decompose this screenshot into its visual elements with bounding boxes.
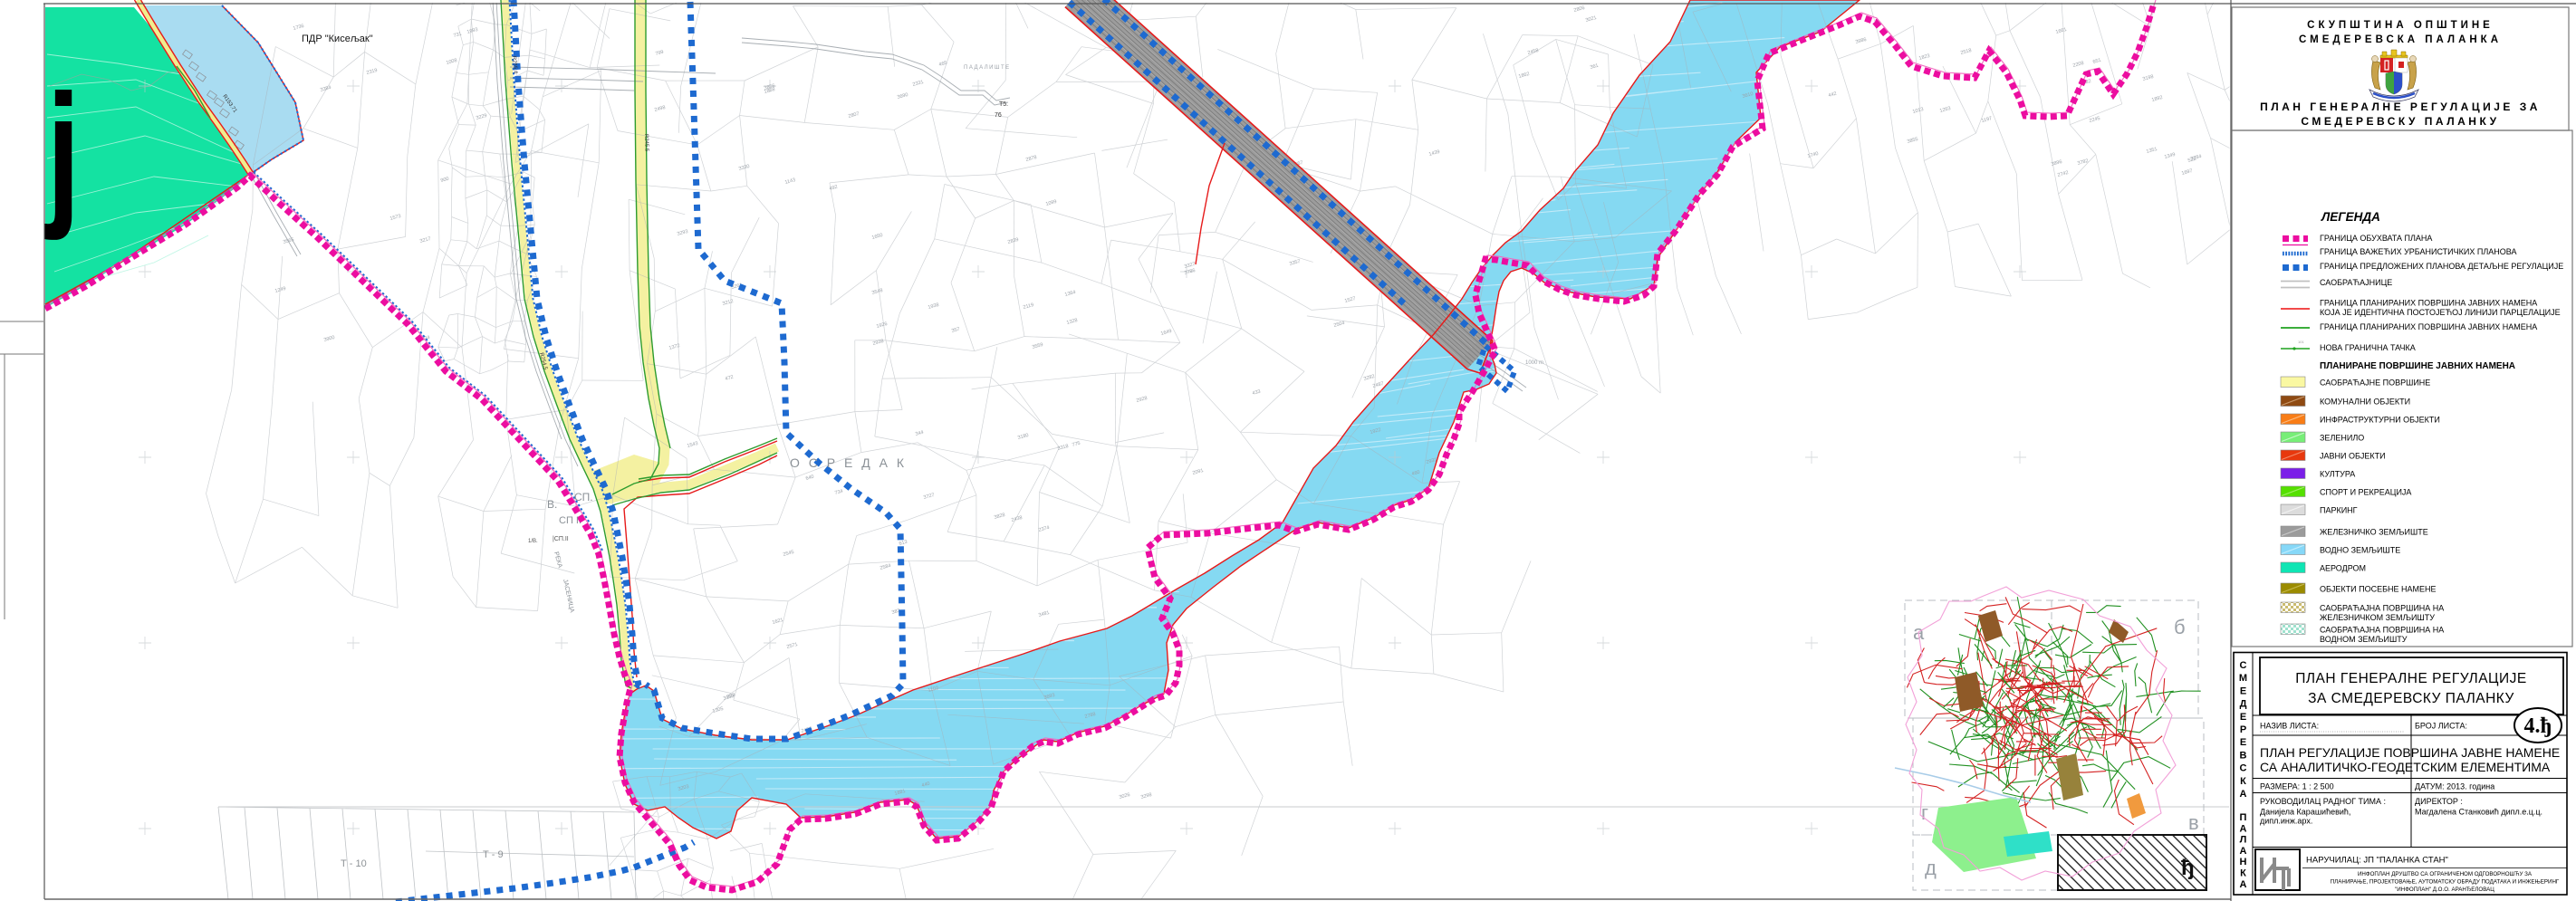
svg-text:ПЛАН ГЕНЕРАЛНЕ РЕГУЛАЦИЈЕ: ПЛАН ГЕНЕРАЛНЕ РЕГУЛАЦИЈЕ	[2295, 671, 2527, 686]
svg-text:САОБРАЋАЈНЕ ПОВРШИНЕ: САОБРАЋАЈНЕ ПОВРШИНЕ	[2320, 379, 2430, 388]
svg-text:ГРАНИЦА ПРЕДЛОЖЕНИХ ПЛАНОВА ДЕ: ГРАНИЦА ПРЕДЛОЖЕНИХ ПЛАНОВА ДЕТАЉНЕ РЕГУ…	[2320, 262, 2563, 271]
svg-text:БРОЈ ЛИСТА:: БРОЈ ЛИСТА:	[2415, 722, 2467, 731]
svg-text:РАЗМЕРА: 1 : 2 500: РАЗМЕРА: 1 : 2 500	[2260, 782, 2334, 791]
svg-text:Е: Е	[2240, 712, 2246, 723]
svg-text:КОЈА ЈЕ ИДЕНТИЧНА ПОСТОЈЕЋОЈ Л: КОЈА ЈЕ ИДЕНТИЧНА ПОСТОЈЕЋОЈ ЛИНИЈИ ПАРЦ…	[2320, 308, 2561, 317]
svg-text:АЕРОДРОМ: АЕРОДРОМ	[2320, 564, 2366, 573]
svg-text:РУКОВОДИЛАЦ РАДНОГ ТИМА :: РУКОВОДИЛАЦ РАДНОГ ТИМА :	[2260, 797, 2386, 806]
svg-text:СМЕДЕРЕВСКА ПАЛАНКА: СМЕДЕРЕВСКА ПАЛАНКА	[2299, 34, 2502, 45]
svg-text:Д: Д	[2240, 699, 2247, 710]
svg-text:ДАТУМ: 2013. година: ДАТУМ: 2013. година	[2415, 782, 2494, 791]
svg-text:ђ: ђ	[2181, 856, 2195, 880]
svg-text:ЖЕЛЕЗНИЧКОМ ЗЕМЉИШТУ: ЖЕЛЕЗНИЧКОМ ЗЕМЉИШТУ	[2320, 613, 2435, 622]
svg-text:101: 101	[2298, 340, 2304, 344]
svg-text:САОБРАЋАЈНА ПОВРШИНА НА: САОБРАЋАЈНА ПОВРШИНА НА	[2320, 604, 2444, 613]
svg-text:б: б	[2174, 616, 2186, 638]
svg-text:А: А	[2240, 879, 2247, 890]
svg-text:О С Р Е Д А К: О С Р Е Д А К	[790, 455, 907, 470]
svg-text:САОБРАЋАЈНИЦЕ: САОБРАЋАЈНИЦЕ	[2320, 278, 2392, 287]
svg-text:Данијела Карашићевић,: Данијела Карашићевић,	[2260, 808, 2350, 817]
svg-text:А: А	[2240, 823, 2247, 834]
svg-text:ПЛАН РЕГУЛАЦИЈЕ ПОВРШИНА ЈАВНЕ: ПЛАН РЕГУЛАЦИЈЕ ПОВРШИНА ЈАВНЕ НАМЕНЕ	[2260, 745, 2560, 760]
svg-text:ВОДНОМ ЗЕМЉИШТУ: ВОДНОМ ЗЕМЉИШТУ	[2320, 635, 2408, 644]
svg-text:Н: Н	[2240, 857, 2247, 867]
svg-text:4.ђ: 4.ђ	[2524, 714, 2552, 738]
svg-text:дипл.инж.арх.: дипл.инж.арх.	[2260, 817, 2312, 826]
svg-text:КУЛТУРА: КУЛТУРА	[2320, 470, 2355, 479]
svg-text:ЗЕЛЕНИЛО: ЗЕЛЕНИЛО	[2320, 434, 2364, 443]
svg-text:д: д	[1925, 857, 1937, 879]
svg-text:А: А	[2240, 789, 2247, 800]
svg-text:В: В	[2240, 750, 2247, 761]
svg-text:Е: Е	[2240, 737, 2246, 748]
svg-text:"ИНФОПЛАН" Д.О.О. АРАНЂЕЛОВАЦ: "ИНФОПЛАН" Д.О.О. АРАНЂЕЛОВАЦ	[2395, 887, 2494, 893]
svg-text:П: П	[2240, 812, 2247, 823]
svg-text:ПЛАНИРАЊЕ, ПРОЈЕКТОВАЊЕ, АУТОМ: ПЛАНИРАЊЕ, ПРОЈЕКТОВАЊЕ, АУТОМАТСКУ ОБРА…	[2331, 879, 2560, 886]
svg-text:ПДР "Кисељак": ПДР "Кисељак"	[302, 34, 373, 44]
svg-text:ПАДАЛИШТЕ: ПАДАЛИШТЕ	[964, 65, 1011, 71]
svg-text:НАРУЧИЛАЦ: ЈП "ПАЛАНКА СТАН": НАРУЧИЛАЦ: ЈП "ПАЛАНКА СТАН"	[2306, 856, 2448, 866]
svg-text:ОБЈЕКТИ ПОСЕБНЕ НАМЕНЕ: ОБЈЕКТИ ПОСЕБНЕ НАМЕНЕ	[2320, 585, 2437, 594]
svg-text:А: А	[2240, 846, 2247, 857]
svg-text:ЈАВНИ ОБЈЕКТИ: ЈАВНИ ОБЈЕКТИ	[2320, 452, 2386, 461]
svg-text:К: К	[2240, 868, 2246, 879]
svg-text:ПЛАНИРАНЕ ПОВРШИНЕ ЈАВНИХ НАМЕ: ПЛАНИРАНЕ ПОВРШИНЕ ЈАВНИХ НАМЕНА	[2320, 361, 2515, 371]
svg-text:Р: Р	[2240, 724, 2246, 735]
svg-text:СП.: СП.	[574, 491, 593, 503]
svg-text:СКУПШТИНА ОПШТИНЕ: СКУПШТИНА ОПШТИНЕ	[2307, 20, 2494, 31]
svg-text:ЗА СМЕДЕРЕВСКУ ПАЛАНКУ: ЗА СМЕДЕРЕВСКУ ПАЛАНКУ	[2308, 691, 2514, 706]
svg-text:ГРАНИЦА ПЛАНИРАНИХ ПОВРШИНА Ј: ГРАНИЦА ПЛАНИРАНИХ ПОВРШИНА ЈАВНИХ НАМЕН…	[2320, 299, 2537, 308]
svg-text:ЖЕЛЕЗНИЧКО ЗЕМЉИШТЕ: ЖЕЛЕЗНИЧКО ЗЕМЉИШТЕ	[2320, 528, 2428, 537]
svg-text:R245.5: R245.5	[643, 134, 649, 152]
svg-text:в: в	[2188, 811, 2199, 834]
svg-text:ГРАНИЦА ПЛАНИРАНИХ ПОВРШИНА Ј: ГРАНИЦА ПЛАНИРАНИХ ПОВРШИНА ЈАВНИХ НАМЕН…	[2320, 322, 2537, 331]
svg-text:ПЛАН ГЕНЕРАЛНЕ РЕГУЛАЦИЈЕ ЗА: ПЛАН ГЕНЕРАЛНЕ РЕГУЛАЦИЈЕ ЗА	[2260, 101, 2541, 113]
svg-text:ГРАНИЦА ВАЖЕЋИХ УРБАНИСТИЧКИХ: ГРАНИЦА ВАЖЕЋИХ УРБАНИСТИЧКИХ ПЛАНОВА	[2320, 247, 2516, 256]
svg-text:СП I.: СП I.	[559, 515, 582, 526]
svg-text:СА АНАЛИТИЧКО-ГЕОДЕТСКИМ ЕЛЕМЕ: СА АНАЛИТИЧКО-ГЕОДЕТСКИМ ЕЛЕМЕНТИМА	[2260, 760, 2551, 774]
svg-text:Магдалена Станковић дипл.е.ц.ц: Магдалена Станковић дипл.е.ц.ц.	[2415, 808, 2542, 817]
svg-text:ИНФРАСТРУКТУРНИ ОБЈЕКТИ: ИНФРАСТРУКТУРНИ ОБЈЕКТИ	[2320, 416, 2440, 425]
svg-text:Т - 10: Т - 10	[341, 858, 367, 869]
svg-text:1/В.: 1/В.	[528, 539, 538, 544]
svg-text:К: К	[2240, 776, 2246, 787]
svg-text:ВОДНО ЗЕМЉИШТЕ: ВОДНО ЗЕМЉИШТЕ	[2320, 546, 2400, 555]
svg-text:НАЗИВ ЛИСТА:: НАЗИВ ЛИСТА:	[2260, 722, 2319, 731]
svg-text:В.: В.	[547, 498, 557, 511]
svg-text:ГРАНИЦА ОБУХВАТА ПЛАНА: ГРАНИЦА ОБУХВАТА ПЛАНА	[2320, 234, 2432, 243]
svg-text:СПОРТ И РЕКРЕАЦИЈА: СПОРТ И РЕКРЕАЦИЈА	[2320, 488, 2411, 497]
svg-text:Т5.: Т5.	[999, 101, 1008, 108]
svg-text:ПАРКИНГ: ПАРКИНГ	[2320, 506, 2358, 515]
svg-text:НОВА ГРАНИЧНА ТАЧКА: НОВА ГРАНИЧНА ТАЧКА	[2320, 343, 2416, 352]
svg-text:Е: Е	[2240, 685, 2246, 696]
svg-text:С: С	[2240, 660, 2247, 671]
svg-text:j: j	[44, 62, 81, 241]
svg-text:76: 76	[995, 112, 1002, 119]
svg-text:Т - 9: Т - 9	[483, 849, 504, 860]
svg-text:ЛЕГЕНДА: ЛЕГЕНДА	[2321, 210, 2380, 224]
svg-text:СМЕДЕРЕВСКУ ПАЛАНКУ: СМЕДЕРЕВСКУ ПАЛАНКУ	[2301, 115, 2499, 128]
svg-text:М: М	[2239, 673, 2247, 684]
svg-text:САОБРАЋАЈНА ПОВРШИНА НА: САОБРАЋАЈНА ПОВРШИНА НА	[2320, 626, 2444, 635]
svg-text:|СП.II: |СП.II	[553, 536, 569, 542]
svg-text:ИНФОПЛАН ДРУШТВО СА ОГРАНИЧЕНО: ИНФОПЛАН ДРУШТВО СА ОГРАНИЧЕНОМ ОДГОВОРН…	[2358, 871, 2533, 877]
svg-text:Л: Л	[2240, 835, 2247, 846]
svg-text:1000 m: 1000 m	[1525, 360, 1543, 366]
svg-text:КОМУНАЛНИ ОБЈЕКТИ: КОМУНАЛНИ ОБЈЕКТИ	[2320, 398, 2410, 407]
svg-text:ДИРЕКТОР :: ДИРЕКТОР :	[2415, 797, 2463, 806]
svg-text:С: С	[2240, 763, 2247, 774]
